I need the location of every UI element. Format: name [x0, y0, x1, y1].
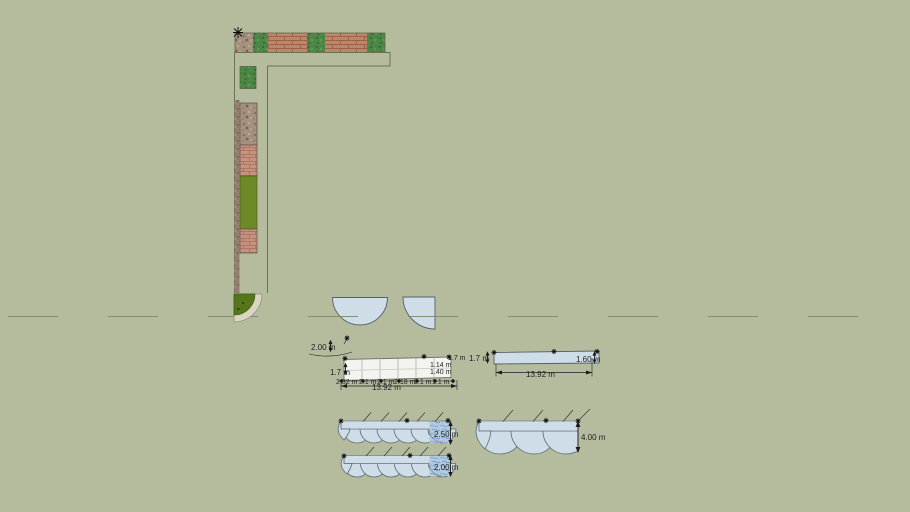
awning-scallop-large[interactable] — [476, 409, 590, 454]
awning-scallop-bottom-strip[interactable] — [341, 447, 455, 477]
dimension-label-bar-total[interactable]: 13.92 m — [526, 370, 555, 379]
pool-quarter[interactable] — [403, 297, 435, 329]
plan-drawing: 2.00 m 1.7 m 1.7 m 1.14 m 1.40 m 2.32 m … — [0, 0, 910, 512]
dimension-label-segment-5[interactable]: 2.1 m — [414, 379, 432, 386]
planter-wall-left-strip[interactable] — [235, 100, 258, 293]
dimension-label-awning-top[interactable]: 2.50 m — [434, 430, 459, 439]
dimension-label-deck-right-upper[interactable]: 1.14 m — [430, 362, 452, 369]
dimension-pool-width[interactable]: 2.00 m — [309, 339, 352, 356]
path-border-outline[interactable] — [235, 53, 391, 294]
dimension-label-awning-bottom[interactable]: 2.00 m — [434, 463, 459, 472]
guide-point-icon[interactable] — [344, 335, 349, 340]
dimension-label-bar-left[interactable]: 1.7 m — [469, 354, 489, 363]
corner-lawn-quarter[interactable] — [234, 294, 262, 322]
awning-rib-ticks — [366, 447, 446, 456]
dimension-label-pool-width[interactable]: 2.00 m — [311, 343, 336, 352]
dimension-bar-left[interactable]: 1.7 m — [469, 351, 490, 363]
dimension-awning-large[interactable]: 4.00 m — [576, 421, 606, 453]
dimension-label-awning-large[interactable]: 4.00 m — [581, 433, 606, 442]
planter-grass-square[interactable] — [240, 67, 256, 89]
origin-cross-icon[interactable] — [233, 27, 243, 38]
pool-semicircle[interactable] — [333, 298, 388, 325]
guide-points — [233, 27, 600, 459]
dimension-label-deck-total[interactable]: 13.92 m — [372, 383, 401, 392]
dimension-label-deck-right-lower[interactable]: 1.40 m — [430, 369, 452, 376]
dimension-label-segment-6[interactable]: 1.1 m — [432, 379, 450, 386]
planter-wall-top-strip[interactable] — [235, 33, 385, 53]
model-viewport[interactable]: 2.00 m 1.7 m 1.7 m 1.14 m 1.40 m 2.32 m … — [0, 0, 910, 512]
awning-rib-ticks — [363, 413, 443, 422]
dimension-label-bar-right[interactable]: 1.60 m — [576, 355, 601, 364]
dimension-label-deck-left[interactable]: 1.7 m — [330, 368, 350, 377]
